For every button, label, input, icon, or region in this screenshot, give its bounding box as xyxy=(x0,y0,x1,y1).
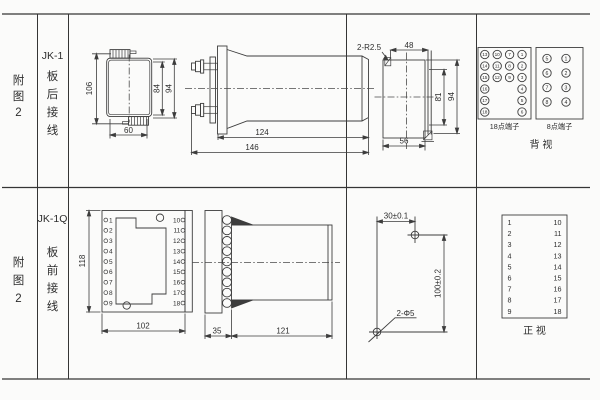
radius-note: 2-R2.5 xyxy=(357,43,382,52)
terminal-number: 4 xyxy=(521,87,524,92)
hatch-lines xyxy=(132,117,147,126)
dim-label-35: 35 xyxy=(213,327,222,336)
mounting-stud-bottom xyxy=(192,103,218,116)
terminal-circle xyxy=(181,218,185,222)
dim-118 xyxy=(86,211,101,313)
terminal-number: 13 xyxy=(173,248,181,255)
terminal-circle xyxy=(104,280,108,284)
terminal-number: 7 xyxy=(508,52,511,57)
terminal-circle xyxy=(104,249,108,253)
table-grid xyxy=(2,14,590,379)
terminal-bump xyxy=(223,278,232,287)
terminal-number: 8 xyxy=(546,100,549,106)
terminal-number: 2 xyxy=(521,64,524,69)
grid-vertical-rules xyxy=(38,14,477,379)
terminal-number: 1 xyxy=(521,52,524,57)
jk1q-front-terminal-table: 1 2 3 4 5 6 7 8 9 10 11 12 13 14 15 16 1… xyxy=(502,215,567,337)
terminal-circle xyxy=(104,229,108,233)
terminal-number: 11 xyxy=(554,229,561,238)
terminal-bumps xyxy=(223,216,232,308)
wiring-mode-char: 后 xyxy=(47,88,59,101)
terminal-number: 1 xyxy=(508,218,512,227)
panel-edge-lines xyxy=(428,51,431,135)
dim-label-60: 60 xyxy=(124,126,133,135)
terminal-grid-18pt: 13 10 7 1 14 11 8 2 15 12 9 3 16 4 17 5 … xyxy=(481,50,527,116)
terminal-column-left: 1 2 3 4 5 6 7 8 9 xyxy=(104,217,113,307)
stud-washer xyxy=(201,60,204,73)
terminal-number: 1 xyxy=(109,217,113,224)
terminal-circle xyxy=(104,260,108,264)
dim-label-102: 102 xyxy=(136,322,150,331)
terminal-number: 15 xyxy=(482,75,488,80)
terminal-bump xyxy=(223,299,232,308)
terminal-circle xyxy=(104,239,108,243)
terminal-number: 2 xyxy=(565,71,568,77)
terminal-number: 12 xyxy=(495,75,501,80)
terminal-bump xyxy=(223,288,232,297)
model-label: JK-1Q xyxy=(38,213,68,225)
wiring-mode-char: 板 xyxy=(47,245,59,259)
jk1q-front-plate-view: 1 2 3 4 5 6 7 8 9 10 11 12 13 14 15 16 1… xyxy=(78,211,192,335)
jk1q-drill-template: 30±0.1 100±0.2 2-Φ5 xyxy=(369,212,448,342)
terminal-circle xyxy=(181,291,185,295)
terminal-number: 7 xyxy=(546,85,549,91)
terminal-circle xyxy=(104,291,108,295)
terminal-number: 15 xyxy=(554,274,562,283)
stud-nut xyxy=(196,105,201,115)
terminal-circle xyxy=(181,301,185,305)
model-label: JK-1 xyxy=(42,50,64,62)
terminal-bump xyxy=(223,268,232,277)
terminal-table-left-column: 1 2 3 4 5 6 7 8 9 xyxy=(508,218,512,316)
dim-label-121: 121 xyxy=(276,327,290,336)
relay-body-outline xyxy=(227,50,369,129)
stud-washer xyxy=(201,103,204,116)
terminal-number: 10 xyxy=(173,217,181,224)
terminal-number: 12 xyxy=(554,240,562,249)
terminal-number: 14 xyxy=(554,262,562,271)
dim-label-48: 48 xyxy=(405,41,414,50)
hole-note: 2-Φ5 xyxy=(397,309,415,318)
stud-nut xyxy=(196,61,201,71)
terminal-number: 13 xyxy=(554,251,562,260)
mounting-hole xyxy=(156,214,163,221)
sidebar-top: 附 图 2 JK-1 板 后 接 线 xyxy=(13,50,64,137)
back-view-label: 背 视 xyxy=(530,138,553,151)
terminal-number: 12 xyxy=(173,238,181,245)
terminal-number: 9 xyxy=(109,300,113,307)
mounting-stud-top xyxy=(192,60,218,73)
terminal-number: 11 xyxy=(495,64,500,69)
terminal-number: 8 xyxy=(508,64,511,69)
terminal-number: 1 xyxy=(565,56,568,62)
wiring-mode-char: 接 xyxy=(47,106,59,119)
terminal-bump xyxy=(223,247,232,256)
terminal-number: 17 xyxy=(173,290,181,297)
dim-106 xyxy=(92,54,129,125)
grid-horizontal-rules xyxy=(2,14,590,379)
technical-drawing-sheet: 附 图 2 JK-1 板 后 接 线 附 图 2 JK-1Q 板 前 接 线 1… xyxy=(0,0,600,400)
terminal-bump xyxy=(223,237,232,246)
figure-label-char: 2 xyxy=(15,293,21,305)
terminal-number: 16 xyxy=(482,87,488,92)
cutout-outline xyxy=(383,60,425,138)
terminal-number: 8 xyxy=(508,296,512,305)
terminal-circle xyxy=(181,270,185,274)
terminal-circle xyxy=(104,301,108,305)
terminal-number: 7 xyxy=(508,285,512,294)
terminal-column-right: 10 11 12 13 14 15 16 17 18 xyxy=(173,217,185,307)
terminal-number: 6 xyxy=(508,274,512,283)
dim-48 xyxy=(391,48,429,58)
terminal-bump xyxy=(223,226,232,235)
terminal-number: 15 xyxy=(173,269,181,276)
jk1q-side-view: 35 121 xyxy=(192,211,340,340)
terminal-table-right-column: 10 11 12 13 14 15 16 17 18 xyxy=(554,218,562,316)
terminal-box-18pt-label: 18点端子 xyxy=(490,122,520,131)
wiring-mode-char: 前 xyxy=(47,263,59,277)
stud-tip xyxy=(192,107,196,114)
terminal-number: 13 xyxy=(482,52,488,57)
terminal-number: 6 xyxy=(546,71,549,77)
dim-label-81: 81 xyxy=(434,92,443,101)
terminal-number: 3 xyxy=(109,238,113,245)
terminal-grid-8pt: 5 1 6 2 7 3 8 4 xyxy=(543,54,570,106)
terminal-number: 11 xyxy=(173,228,180,235)
terminal-number: 17 xyxy=(482,98,488,103)
dim-35-121 xyxy=(205,302,332,340)
wiring-mode-char: 线 xyxy=(47,123,59,137)
terminal-number: 8 xyxy=(109,290,113,297)
jk1-front-view: 106 84 94 60 xyxy=(85,50,177,139)
terminal-number: 6 xyxy=(109,269,113,276)
terminal-circle xyxy=(181,229,185,233)
terminal-number: 4 xyxy=(109,248,113,255)
cover-step-outline xyxy=(116,218,166,304)
terminal-number: 18 xyxy=(482,110,488,115)
terminal-number: 6 xyxy=(521,110,524,115)
terminal-circle xyxy=(181,239,185,243)
terminal-number: 9 xyxy=(508,307,512,316)
terminal-number: 10 xyxy=(554,218,562,227)
terminal-number: 18 xyxy=(173,300,181,307)
dim-label-124: 124 xyxy=(255,128,269,137)
dim-label-118: 118 xyxy=(78,254,87,267)
terminal-bump xyxy=(223,216,232,225)
wiring-mode-char: 线 xyxy=(47,299,59,313)
terminal-number: 5 xyxy=(546,56,549,62)
figure-label-char: 图 xyxy=(13,90,25,103)
dim-label-56: 56 xyxy=(400,137,409,146)
dim-label-84: 84 xyxy=(153,84,162,93)
terminal-circle xyxy=(181,280,185,284)
terminal-number: 2 xyxy=(109,228,113,235)
dim-label-106: 106 xyxy=(85,81,94,95)
stud-tip xyxy=(192,63,196,70)
terminal-number: 18 xyxy=(554,307,562,316)
plate-thickness-edge xyxy=(185,211,192,313)
terminal-number: 5 xyxy=(521,98,524,103)
jk1-side-view: 124 146 xyxy=(185,46,376,155)
terminal-number: 3 xyxy=(508,240,512,249)
terminal-number: 10 xyxy=(495,52,501,57)
hatch-lines xyxy=(113,50,128,59)
jk1-panel-cutout-view: 2-R2.5 48 81 94 56 xyxy=(357,41,460,151)
terminal-number: 16 xyxy=(554,285,562,294)
figure-label-char: 图 xyxy=(13,274,25,287)
terminal-box-8pt-label: 8点端子 xyxy=(547,122,573,131)
dim-label-30: 30±0.1 xyxy=(384,212,409,221)
terminal-number: 14 xyxy=(173,259,181,266)
terminal-number: 2 xyxy=(508,229,512,238)
wiring-mode-char: 接 xyxy=(47,282,59,295)
terminal-number: 3 xyxy=(565,85,568,91)
terminal-block-lip xyxy=(130,51,136,54)
sidebar-bottom: 附 图 2 JK-1Q 板 前 接 线 xyxy=(13,213,68,313)
terminal-circle xyxy=(104,218,108,222)
dim-label-146: 146 xyxy=(245,143,259,152)
terminal-number: 4 xyxy=(508,251,512,260)
figure-label-char: 附 xyxy=(13,255,25,269)
terminal-circle xyxy=(104,270,108,274)
dim-label-94: 94 xyxy=(447,92,456,101)
flange-plate xyxy=(218,46,228,134)
terminal-number: 3 xyxy=(521,75,524,80)
terminal-circle xyxy=(181,260,185,264)
terminal-number: 9 xyxy=(508,75,511,80)
drawing-canvas: 附 图 2 JK-1 板 后 接 线 附 图 2 JK-1Q 板 前 接 线 1… xyxy=(0,0,600,400)
terminal-circle xyxy=(181,249,185,253)
terminal-number: 5 xyxy=(109,259,113,266)
figure-label-char: 附 xyxy=(13,73,25,87)
front-view-label: 正 视 xyxy=(523,324,546,337)
dim-label-100: 100±0.2 xyxy=(434,269,443,298)
terminal-number: 14 xyxy=(482,64,488,69)
terminal-number: 17 xyxy=(554,296,562,305)
jk1-back-view: 13 10 7 1 14 11 8 2 15 12 9 3 16 4 17 5 … xyxy=(478,48,583,152)
figure-label-char: 2 xyxy=(15,107,21,119)
dim-label-94: 94 xyxy=(165,84,174,93)
terminal-bump xyxy=(223,257,232,266)
wiring-mode-char: 板 xyxy=(47,69,59,83)
radius-leader xyxy=(382,52,388,60)
terminal-number: 16 xyxy=(173,280,181,287)
terminal-number: 7 xyxy=(109,280,113,287)
terminal-number: 4 xyxy=(565,100,568,106)
hole-note-leader xyxy=(369,318,417,342)
front-plate-section xyxy=(205,211,222,314)
mounting-hole xyxy=(123,302,130,309)
terminal-number: 5 xyxy=(508,262,512,271)
